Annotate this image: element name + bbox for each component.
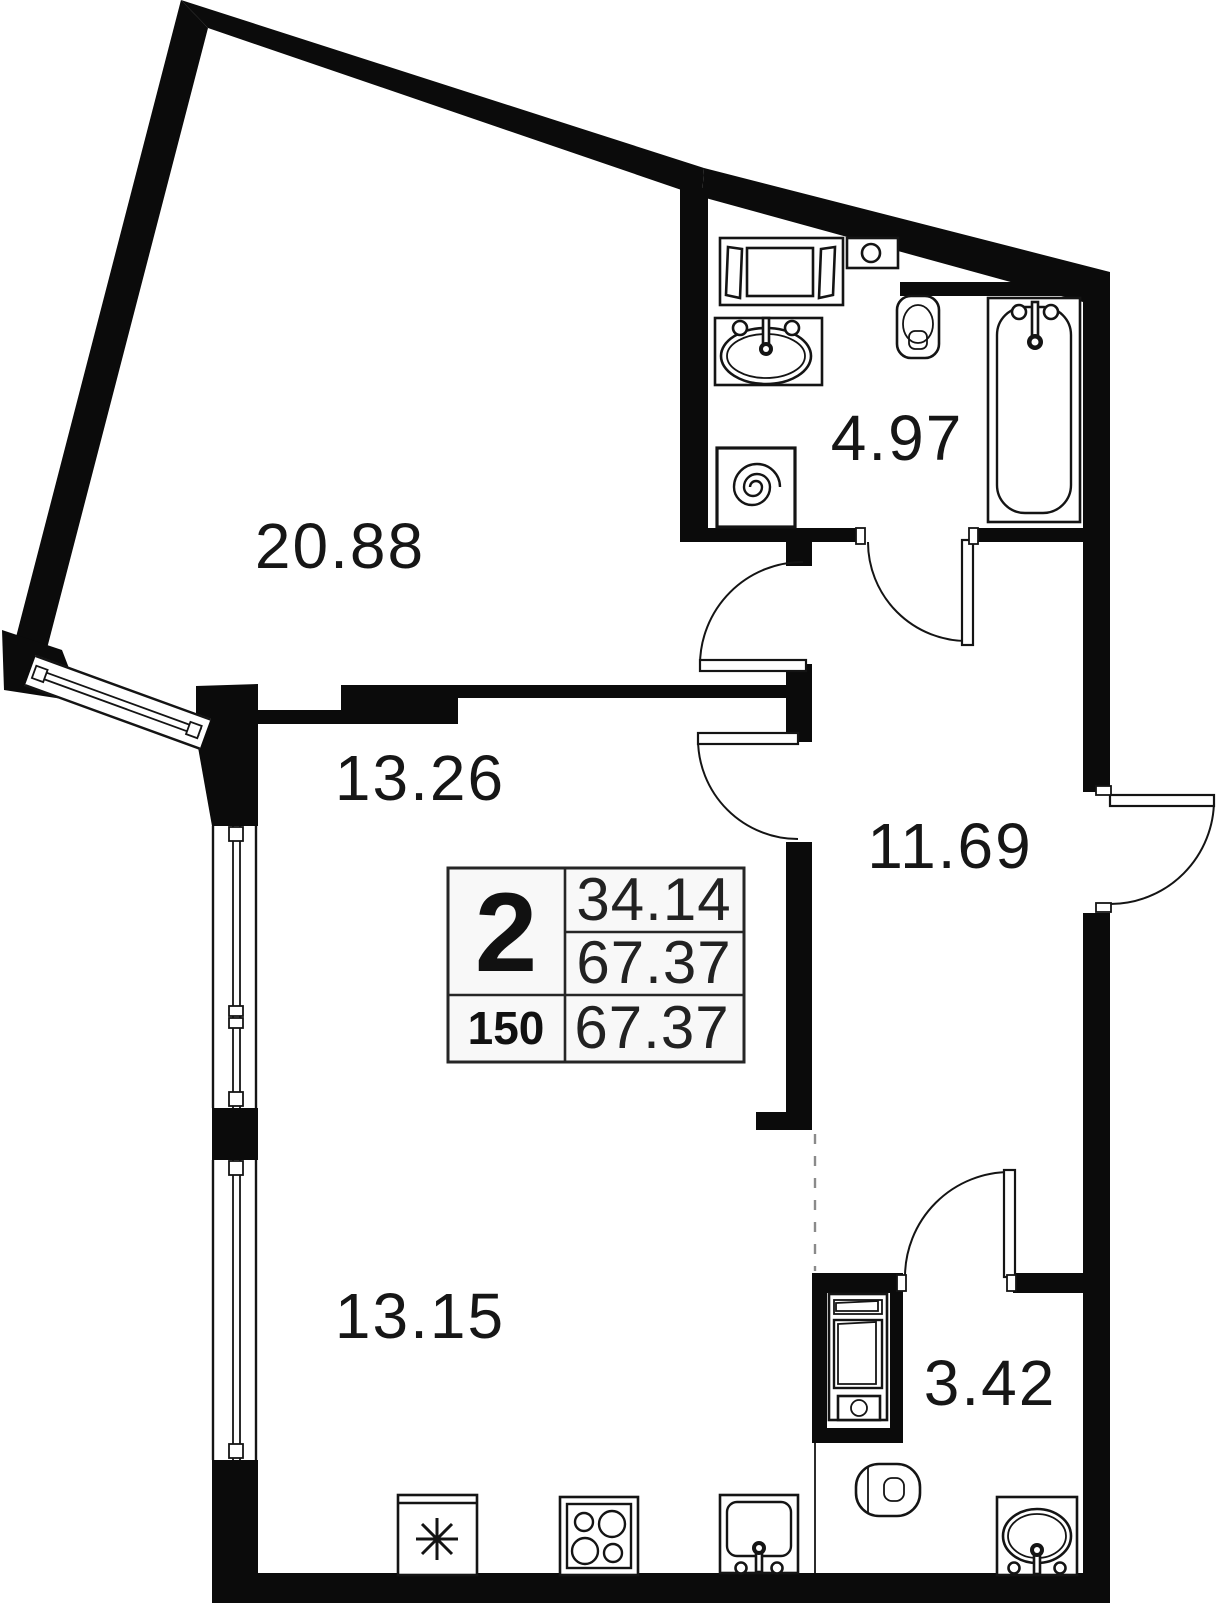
door-bathroom <box>856 528 978 645</box>
window-bedroom <box>212 826 258 1108</box>
area-total-repeat-value: 67.37 <box>574 994 729 1061</box>
room-label-bathroom: 4.97 <box>831 402 964 474</box>
door-leaf <box>962 540 973 645</box>
wall-left-slanted <box>8 0 208 668</box>
wall-bathroom-inner-top <box>900 282 1083 296</box>
room-label-living-room: 20.88 <box>255 510 425 582</box>
room-label-kitchen: 13.15 <box>335 1280 505 1352</box>
wall-top-slanted-1 <box>181 0 704 197</box>
cabinet-icon <box>720 238 843 305</box>
room-label-hallway: 11.69 <box>867 810 1032 882</box>
wall-hall-mid <box>786 664 812 742</box>
wall-hall-long <box>786 842 812 1114</box>
room-label-bedroom: 13.26 <box>335 742 505 814</box>
window-living-room <box>25 655 211 750</box>
door-leaf <box>700 660 806 671</box>
wall-right-upper <box>1083 296 1110 792</box>
fridge-icon <box>398 1495 477 1575</box>
floor-plan-page: 20.88 4.97 13.26 11.69 13.15 3.42 2 34.1… <box>0 0 1216 1603</box>
rooms-count: 2 <box>475 870 537 995</box>
stove-icon <box>560 1497 638 1575</box>
washing-machine-icon <box>717 448 795 527</box>
door-living-room <box>700 562 806 671</box>
unit-info-table: 2 34.14 67.37 150 67.37 <box>448 866 744 1062</box>
wall-bathroom-bottom-right <box>972 528 1083 542</box>
sink-icon <box>715 318 822 385</box>
wall-niche-bottom <box>827 1428 903 1443</box>
door-leaf <box>1110 795 1214 806</box>
wall-bedroom-top-a <box>257 710 341 724</box>
wc-sink-icon <box>997 1497 1077 1575</box>
wc-washing-machine-icon <box>829 1294 887 1420</box>
wall-bathroom-bottom-left <box>685 528 863 542</box>
wall-bathroom-left <box>680 188 708 542</box>
door-wc <box>897 1170 1016 1291</box>
wc-toilet-icon <box>856 1464 920 1516</box>
wall-left-column-top-block <box>196 684 258 826</box>
toilet-icon <box>897 296 939 358</box>
door-leaf <box>1004 1170 1015 1277</box>
wall-wc-top-right <box>1013 1273 1083 1293</box>
window-kitchen <box>212 1160 258 1460</box>
wall-wc-left <box>812 1273 827 1443</box>
wall-hall-foot <box>756 1112 812 1130</box>
wall-bottom <box>212 1573 1110 1603</box>
kitchen-sink-icon <box>720 1495 798 1574</box>
wall-niche-right <box>890 1273 903 1443</box>
wall-bedroom-top-c <box>458 685 810 698</box>
wall-left-column-mid-block <box>212 1108 258 1162</box>
floor-plan: 20.88 4.97 13.26 11.69 13.15 3.42 2 34.1… <box>0 0 1216 1603</box>
room-label-wc: 3.42 <box>924 1347 1057 1419</box>
door-bedroom <box>698 733 798 839</box>
bathtub-icon <box>988 298 1080 522</box>
area-total-value: 67.37 <box>576 929 731 996</box>
door-entrance <box>1096 786 1214 912</box>
area-living-value: 34.14 <box>576 866 731 933</box>
wall-left-column-bottom-block <box>212 1460 258 1603</box>
boiler-icon <box>847 238 898 268</box>
wall-bedroom-top-b <box>341 685 458 724</box>
unit-number: 150 <box>468 1002 545 1054</box>
door-leaf <box>698 733 798 744</box>
wall-right-lower <box>1083 913 1110 1603</box>
